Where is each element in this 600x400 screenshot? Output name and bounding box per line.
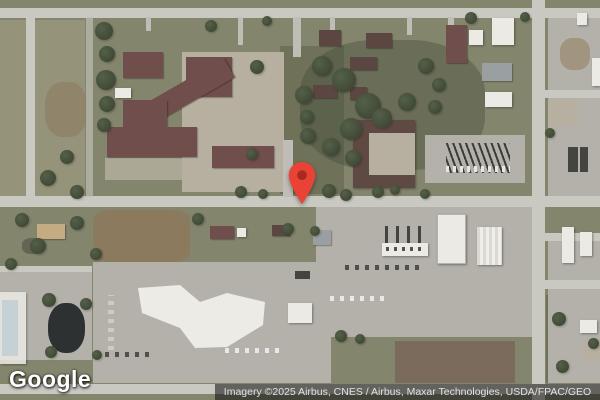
tree [588, 338, 599, 349]
barn [446, 25, 467, 63]
tree [258, 189, 268, 199]
road-spur [545, 280, 600, 289]
building [580, 232, 592, 256]
tree [42, 293, 56, 307]
tree [250, 60, 264, 74]
school-building [123, 52, 163, 78]
attribution-text: Imagery ©2025 Airbus, CNES / Airbus, Max… [224, 386, 591, 398]
tree [99, 96, 115, 112]
tree [300, 110, 314, 124]
school-building [107, 127, 197, 157]
road-spur [545, 90, 600, 98]
tree [70, 185, 84, 199]
fuel-pump-island [418, 226, 421, 243]
driveway [293, 17, 301, 57]
tree [192, 213, 204, 225]
school-building [123, 100, 167, 128]
truck-cabs [446, 166, 510, 172]
house [319, 30, 341, 46]
tree [420, 189, 430, 199]
tree [97, 118, 111, 132]
map-pin-icon[interactable] [288, 161, 316, 205]
travel-center-building [437, 214, 466, 264]
small-building [115, 88, 131, 98]
dirt-field [395, 341, 515, 383]
parking-stripes [108, 295, 114, 350]
field [45, 82, 87, 137]
warehouse [492, 18, 514, 45]
tree [96, 70, 116, 90]
tree [99, 46, 115, 62]
dirt-field [93, 210, 190, 262]
dirt-pile [560, 38, 590, 70]
tree [322, 138, 340, 156]
shed [469, 30, 483, 45]
house [210, 226, 234, 239]
building [562, 227, 574, 263]
school-annex [212, 146, 274, 168]
tree [70, 216, 84, 230]
small-building [288, 303, 312, 323]
tree [205, 20, 217, 32]
small-building [577, 13, 587, 25]
building [580, 320, 597, 333]
tree [15, 213, 29, 227]
swimming-pool [2, 300, 18, 356]
tree [235, 186, 247, 198]
driveway [86, 17, 93, 197]
tree [372, 186, 384, 198]
fuel-pump-island [396, 226, 399, 243]
tree [312, 56, 332, 76]
tree [556, 360, 569, 373]
tree [372, 108, 392, 128]
metal-building [482, 63, 512, 81]
tree [310, 226, 320, 236]
road-right-vertical [532, 0, 545, 400]
tree [45, 346, 57, 358]
courtyard [369, 133, 415, 175]
tree [465, 12, 477, 24]
tree [295, 86, 313, 104]
tree [95, 22, 113, 40]
tree [30, 238, 46, 254]
tree [520, 12, 530, 22]
tree [340, 118, 362, 140]
house [350, 57, 377, 70]
parked-cars [345, 265, 425, 270]
tree [332, 68, 356, 92]
tree [90, 248, 102, 260]
tree [40, 170, 56, 186]
industrial-building [568, 147, 578, 172]
parked-cars [225, 348, 280, 353]
building-pad [548, 100, 578, 126]
tree [60, 150, 74, 164]
tree [322, 184, 336, 198]
tree [246, 148, 258, 160]
tree [335, 330, 347, 342]
tree [552, 312, 566, 326]
fuel-pump-island [385, 226, 388, 243]
tree [418, 58, 434, 74]
driveway [146, 17, 151, 31]
warehouse [485, 92, 512, 107]
tree [390, 185, 400, 195]
house [366, 33, 392, 48]
map-pin-body [289, 162, 315, 204]
pond [48, 303, 85, 353]
attribution-bar: Imagery ©2025 Airbus, CNES / Airbus, Max… [215, 384, 600, 400]
shed [295, 271, 310, 279]
google-logo[interactable]: Google [9, 366, 91, 393]
industrial-building [580, 147, 588, 172]
parked-cars [95, 352, 150, 357]
fuel-pump-island [407, 226, 410, 243]
shed [237, 228, 246, 237]
tree [5, 258, 17, 270]
truck-stop-lot [330, 207, 538, 337]
fuel-pumps [386, 247, 424, 251]
tree [80, 298, 92, 310]
tree [398, 93, 416, 111]
tree [92, 350, 102, 360]
tree [432, 78, 446, 92]
tree [345, 150, 361, 166]
tree [300, 128, 316, 144]
parked-cars [330, 296, 385, 301]
truck-fuel-canopy [477, 227, 502, 265]
map-pin-dot [297, 170, 307, 180]
driveway [238, 17, 243, 45]
campus-walkway [105, 158, 200, 180]
satellite-map-canvas[interactable]: Google Imagery ©2025 Airbus, CNES / Airb… [0, 0, 600, 400]
tree [428, 100, 442, 114]
tree [340, 189, 352, 201]
house [37, 224, 65, 239]
tree [545, 128, 555, 138]
tree [262, 16, 272, 26]
road-left-vertical [26, 17, 35, 197]
small-building [592, 58, 600, 86]
tree [282, 223, 294, 235]
driveway [407, 17, 412, 35]
tree [355, 334, 365, 344]
